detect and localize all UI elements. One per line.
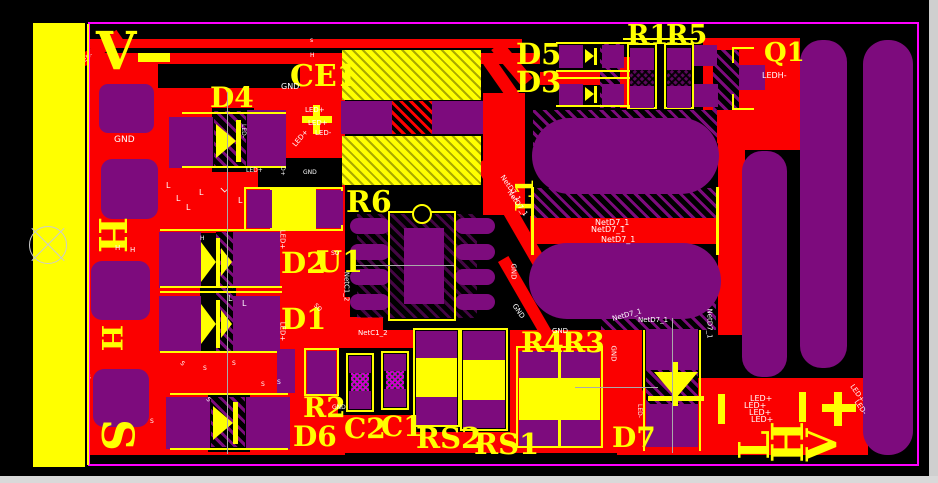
screen-edge-right: [929, 0, 938, 483]
pcb-layout-canvas: V H H S L H V CE1 D4 D5 D3 R1 R5 Q1 R6 U…: [0, 0, 938, 483]
silk-board-edge-left: [87, 24, 89, 465]
guide-line-horizontal: [356, 265, 454, 266]
guide-line-vertical: [672, 318, 673, 453]
guide-line-vertical: [227, 92, 228, 454]
screen-edge-bottom: [0, 476, 938, 483]
guide-line-horizontal: [575, 387, 658, 388]
origin-marker-icon: [29, 226, 67, 264]
board-outline[interactable]: [88, 22, 919, 466]
